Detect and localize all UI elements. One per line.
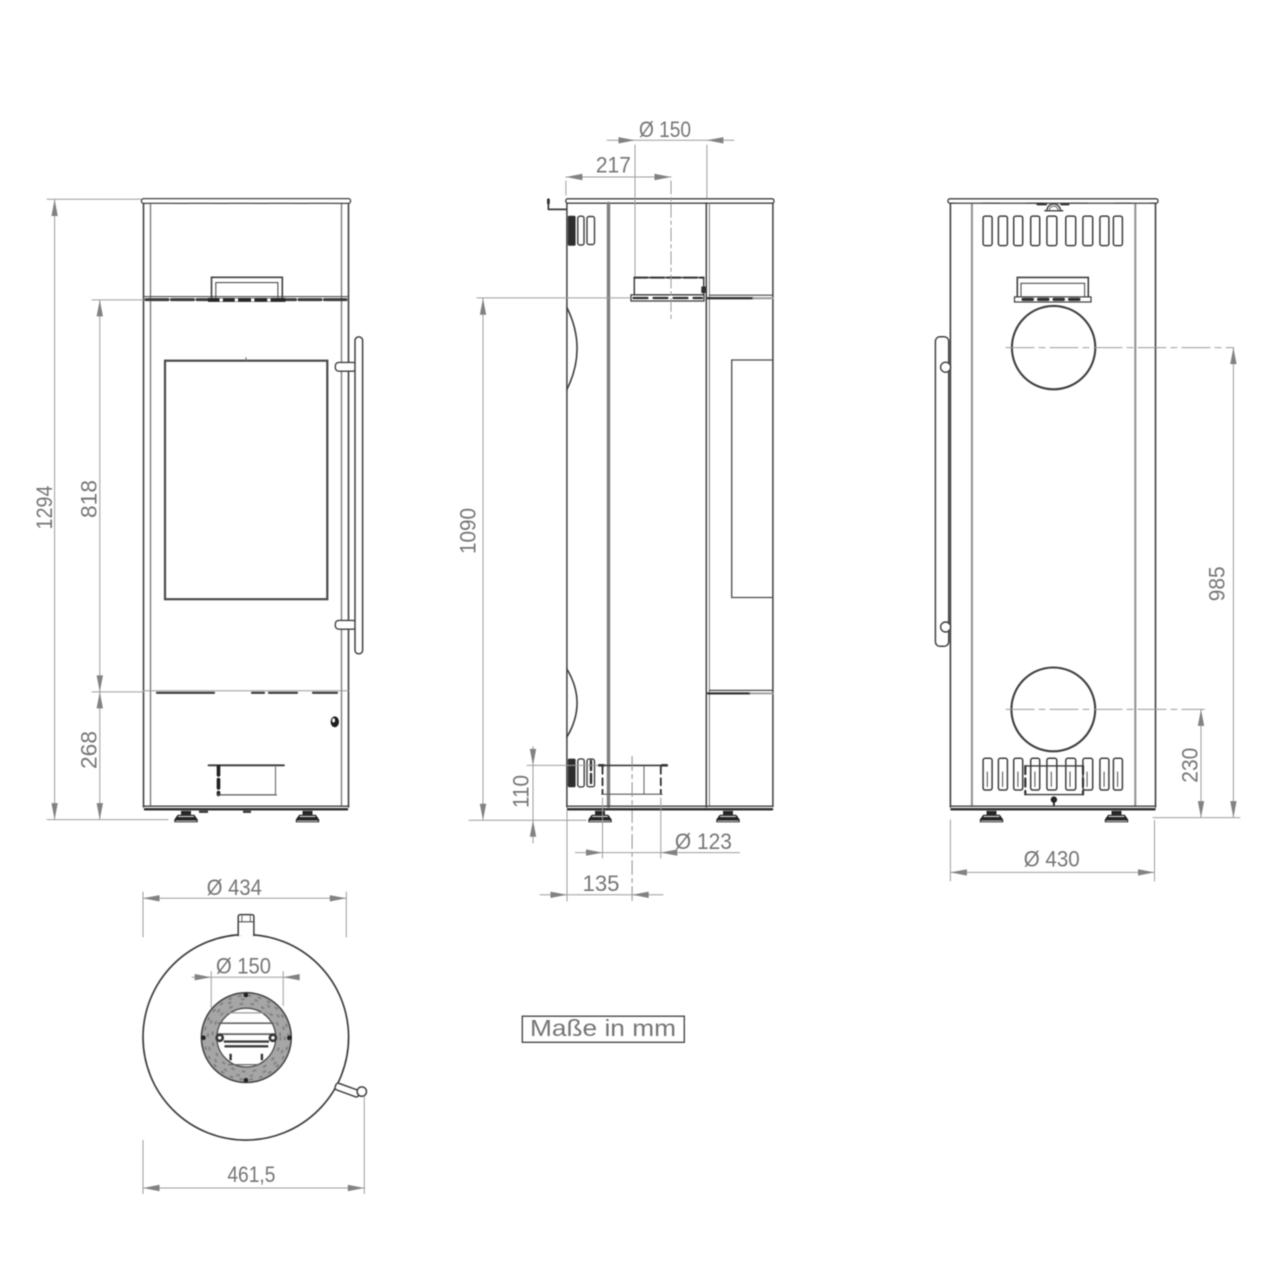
svg-text:Ø 434: Ø 434 [207,875,262,900]
svg-text:135: 135 [583,871,620,896]
svg-text:818: 818 [77,480,102,518]
svg-text:Ø 150: Ø 150 [216,954,271,979]
svg-text:Maße in mm: Maße in mm [530,1015,676,1041]
svg-text:Ø 123: Ø 123 [675,829,732,854]
svg-text:Ø 150: Ø 150 [639,117,691,142]
svg-text:461,5: 461,5 [227,1162,275,1187]
svg-text:1090: 1090 [456,508,481,554]
svg-text:268: 268 [77,731,102,769]
svg-text:1294: 1294 [32,486,57,530]
svg-text:230: 230 [1177,748,1202,783]
svg-text:110: 110 [509,775,534,808]
svg-text:217: 217 [596,153,631,178]
svg-text:Ø 430: Ø 430 [1024,847,1080,872]
svg-text:985: 985 [1205,566,1230,601]
